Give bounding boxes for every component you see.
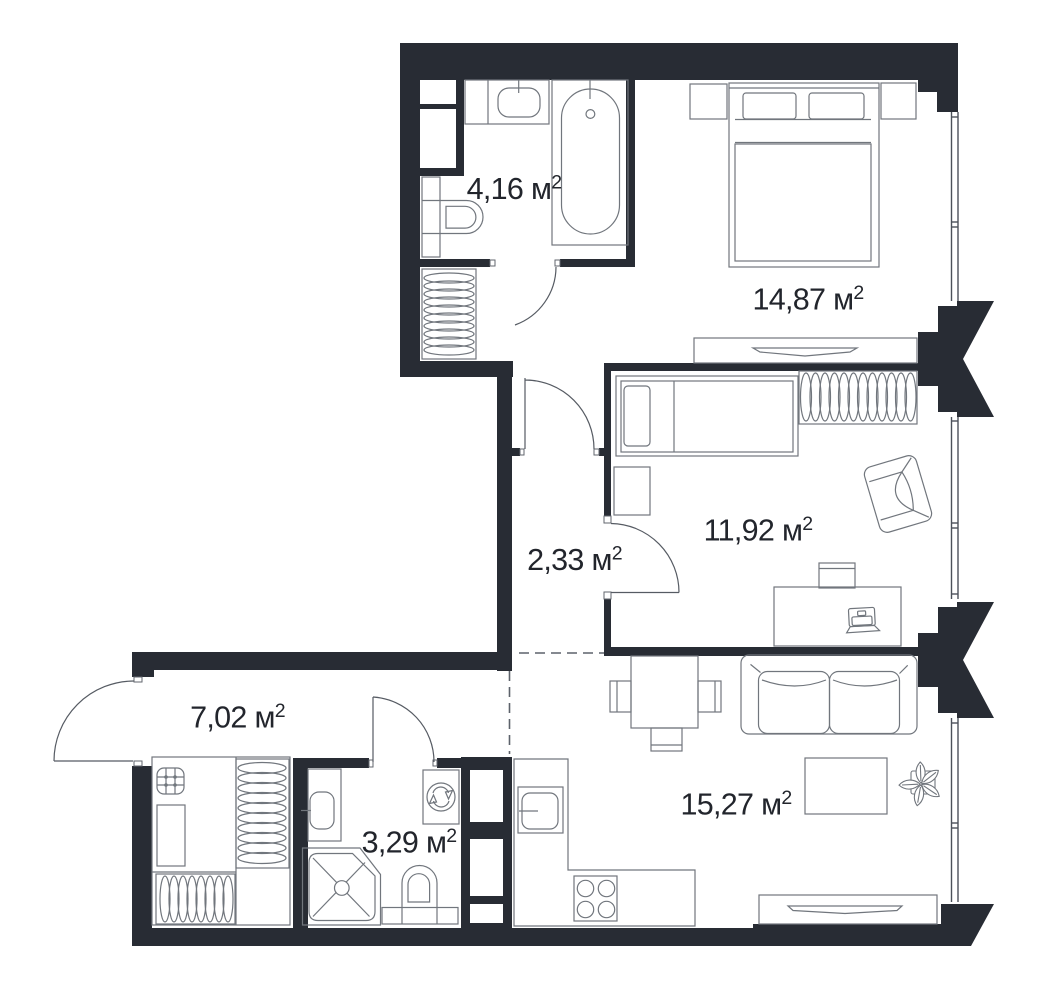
- svg-text:2,33 м2: 2,33 м2: [527, 543, 622, 578]
- svg-text:15,27 м2: 15,27 м2: [680, 787, 791, 822]
- svg-text:14,87 м2: 14,87 м2: [752, 282, 863, 317]
- svg-text:7,02 м2: 7,02 м2: [190, 700, 285, 735]
- svg-text:3,29 м2: 3,29 м2: [362, 825, 457, 860]
- svg-text:11,92 м2: 11,92 м2: [704, 513, 813, 548]
- svg-text:4,16 м2: 4,16 м2: [467, 172, 562, 207]
